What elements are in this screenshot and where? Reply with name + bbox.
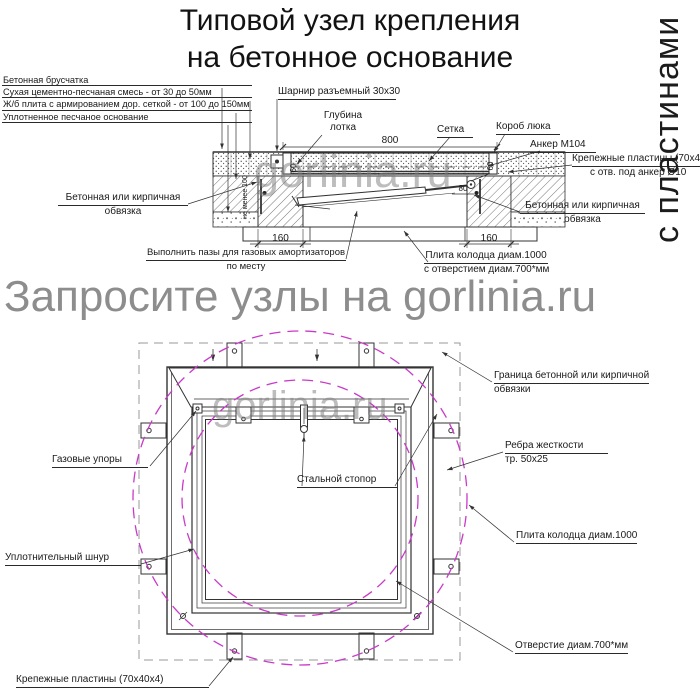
label-edging-right-l2: обвязка <box>520 214 645 226</box>
label-hinge: Шарнир разъемный 30x30 <box>278 86 396 100</box>
label-gas-struts: Газовые упоры <box>52 454 148 468</box>
section-layer-legend: Бетонная брусчатка Сухая цементно-песчан… <box>2 73 252 123</box>
label-seal-cord: Уплотнительный шнур <box>5 552 141 566</box>
svg-text:800: 800 <box>382 135 399 146</box>
label-edging-right-l1: Бетонная или кирпичная <box>520 200 645 214</box>
label-ribs: Ребра жесткости тр. 50x25 <box>505 440 608 465</box>
label-tray-depth: Глубина лотка <box>315 110 371 133</box>
title-line-1: Типовой узел крепления <box>90 2 610 39</box>
label-grooves-l1: Выполнить пазы для газовых амортизаторов <box>146 247 346 261</box>
label-edging-border-l1: Граница бетонной или кирпичной <box>494 370 649 384</box>
layer-sand-mix: Сухая цементно-песчаная смесь - от 30 до… <box>2 86 252 99</box>
label-tray-depth-l1: Глубина <box>315 110 371 122</box>
label-edging-right: Бетонная или кирпичная обвязка <box>520 200 645 225</box>
layer-sand-base: Уплотненное песчаное основание <box>2 111 252 124</box>
label-hole-plan: Отверстие диам.700*мм <box>515 640 628 654</box>
title-line-2: на бетонное основание <box>90 39 610 76</box>
label-slab-plan: Плита колодца диам.1000 <box>516 530 637 544</box>
watermark-plan-site: gorlinia.ru <box>212 384 388 429</box>
label-well-slab: Плита колодца диам.1000 с отверстием диа… <box>424 250 548 275</box>
watermark-banner: Запросите узлы на gorlinia.ru <box>4 272 700 322</box>
svg-text:160: 160 <box>481 233 498 244</box>
layer-rc-slab: Ж/б плита с армированием дор. сеткой - о… <box>2 98 252 111</box>
svg-text:160: 160 <box>272 233 289 244</box>
label-edging-border-l2: обвязки <box>494 384 649 396</box>
label-stopper: Стальной стопор <box>297 474 397 488</box>
dim-min-100: не менее 100 <box>242 175 249 219</box>
label-edging-left-l2: обвязка <box>58 206 188 218</box>
watermark-section-site: gorlinia.ru <box>254 146 452 198</box>
label-tray-depth-l2: лотка <box>315 122 371 134</box>
dim-60-right: 60 <box>486 161 495 170</box>
label-ribs-l1: Ребра жесткости <box>505 440 608 454</box>
label-well-slab-l2: с отверстием диам.700*мм <box>424 264 548 276</box>
label-well-slab-l1: Плита колодца диам.1000 <box>424 250 548 264</box>
label-edging-border: Граница бетонной или кирпичной обвязки <box>494 370 649 395</box>
page-title: Типовой узел крепления на бетонное основ… <box>90 2 610 76</box>
label-ribs-l2: тр. 50x25 <box>505 454 608 466</box>
label-grooves-l2: по месту <box>146 261 346 273</box>
gas-strut-mount-left <box>193 404 202 413</box>
sand-base-left <box>213 212 258 227</box>
gas-strut-mount-right <box>395 404 404 413</box>
label-hatch-box: Короб люка <box>496 121 560 135</box>
label-edging-left-l1: Бетонная или кирпичная <box>58 192 188 206</box>
drawing-page: { "title": { "line1": "Типовой узел креп… <box>0 0 700 700</box>
watermark-vertical: с пластинами <box>648 16 687 243</box>
label-plates-plan: Крепежные пластины (70x40x4) <box>16 674 209 688</box>
dim-80: 80 <box>459 184 468 193</box>
label-mesh: Сетка <box>437 124 473 138</box>
label-edging-left: Бетонная или кирпичная обвязка <box>58 192 188 217</box>
label-grooves: Выполнить пазы для газовых амортизаторов… <box>146 247 346 272</box>
label-anchor: Анкер М104 <box>530 139 596 153</box>
